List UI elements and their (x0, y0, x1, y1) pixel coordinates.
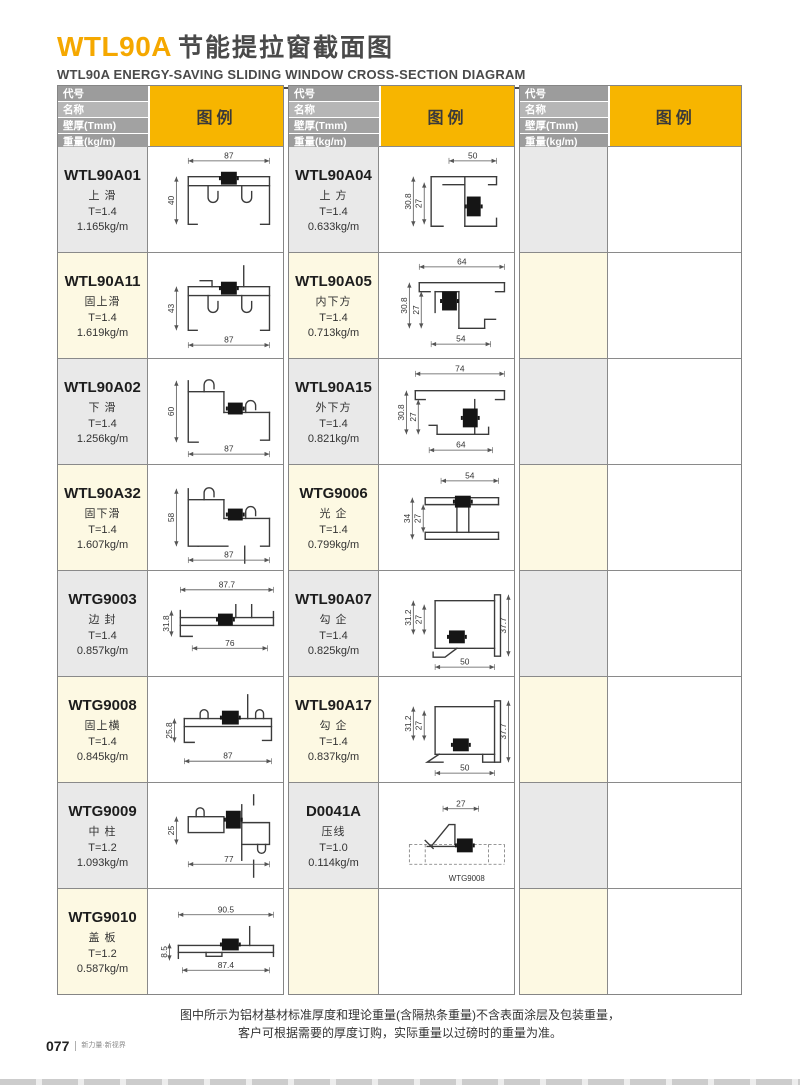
profile-code: WTL90A17 (295, 697, 372, 714)
cross-section-diagram: 4387 (148, 253, 283, 358)
profile-info-cell: WTG9009中 柱T=1.21.093kg/m (58, 783, 148, 888)
profile-code: WTG9008 (68, 697, 136, 714)
profile-row: WTG9006光 企T=1.40.799kg/m543427 (289, 464, 514, 570)
profile-info-cell (289, 889, 379, 994)
profile-table-1: 代号名称壁厚(Tmm)重量(kg/m)图例WTL90A01上 滑T=1.41.1… (57, 85, 284, 995)
profile-name: 中 柱 (88, 823, 116, 839)
table-header: 代号名称壁厚(Tmm)重量(kg/m)图例 (289, 86, 514, 146)
title-series-code: WTL90A (57, 31, 172, 62)
svg-text:WTG9008: WTG9008 (449, 874, 486, 883)
svg-text:27: 27 (413, 513, 423, 523)
profile-code: WTL90A02 (64, 379, 141, 396)
cross-section-diagram: 25.887 (148, 677, 283, 782)
profile-row: WTG9010盖 板T=1.20.587kg/m90.58.587.4 (58, 888, 283, 994)
profile-thickness: T=1.4 (88, 206, 116, 218)
header-label: 名称 (289, 102, 379, 117)
profile-name: 勾 企 (319, 717, 347, 733)
profile-row: WTL90A17勾 企T=1.40.837kg/m31.22737.750 (289, 676, 514, 782)
profile-info-cell (520, 253, 608, 358)
profile-row (520, 358, 741, 464)
profile-thickness: T=1.4 (88, 736, 116, 748)
legend-header: 图例 (381, 86, 514, 146)
cross-section-diagram: 90.58.587.4 (148, 889, 283, 994)
profile-row: WTL90A32固下滑T=1.41.607kg/m5887 (58, 464, 283, 570)
profile-info-cell: WTG9008固上横T=1.40.845kg/m (58, 677, 148, 782)
profile-thickness: T=1.4 (319, 206, 347, 218)
svg-text:54: 54 (465, 470, 475, 480)
profile-name: 勾 企 (319, 611, 347, 627)
profile-info-cell: WTL90A17勾 企T=1.40.837kg/m (289, 677, 379, 782)
profile-info-cell (520, 677, 608, 782)
brand-slogan: 新力量·新视界 (75, 1041, 125, 1051)
svg-text:87.7: 87.7 (219, 579, 236, 589)
profile-code: WTG9003 (68, 591, 136, 608)
profile-code: WTL90A32 (64, 485, 141, 502)
profile-code: WTG9010 (68, 909, 136, 926)
profile-weight: 0.857kg/m (77, 645, 128, 657)
svg-text:30.8: 30.8 (396, 404, 406, 421)
svg-text:58: 58 (166, 513, 176, 523)
profile-thickness: T=1.4 (319, 418, 347, 430)
page-subtitle: WTL90A ENERGY-SAVING SLIDING WINDOW CROS… (57, 67, 740, 82)
profile-weight: 1.619kg/m (77, 327, 128, 339)
page-footer: 077 新力量·新视界 (46, 1038, 126, 1054)
profile-thickness: T=1.4 (88, 312, 116, 324)
profile-name: 上 滑 (88, 187, 116, 203)
cross-section-diagram: 31.22737.750 (379, 571, 514, 676)
svg-text:87: 87 (224, 550, 234, 560)
profile-name: 上 方 (319, 187, 347, 203)
svg-text:64: 64 (457, 256, 467, 266)
cross-section-diagram: 5887 (148, 465, 283, 570)
profile-weight: 1.165kg/m (77, 221, 128, 233)
profile-weight: 0.713kg/m (308, 327, 359, 339)
cross-section-diagram: 27WTG9008 (379, 783, 514, 888)
cross-section-diagram (608, 253, 741, 358)
profile-code: WTL90A11 (65, 273, 141, 290)
table-header: 代号名称壁厚(Tmm)重量(kg/m)图例 (58, 86, 283, 146)
profile-thickness: T=1.4 (88, 630, 116, 642)
profile-code: WTL90A07 (295, 591, 372, 608)
profile-name: 下 滑 (88, 399, 116, 415)
page-number: 077 (46, 1038, 69, 1054)
cross-section-diagram (608, 359, 741, 464)
profile-code: WTL90A04 (295, 167, 372, 184)
legend-header: 图例 (150, 86, 283, 146)
svg-text:27: 27 (414, 198, 424, 208)
profile-row: WTL90A05内下方T=1.40.713kg/m6430.82754 (289, 252, 514, 358)
profile-weight: 0.845kg/m (77, 751, 128, 763)
cross-section-diagram (608, 677, 741, 782)
profile-weight: 0.114kg/m (308, 857, 359, 869)
profile-weight: 0.821kg/m (308, 433, 359, 445)
svg-text:27: 27 (411, 305, 421, 315)
title-chinese: 节能提拉窗截面图 (178, 34, 394, 62)
profile-thickness: T=1.4 (88, 418, 116, 430)
profile-weight: 1.093kg/m (77, 857, 128, 869)
profile-weight: 0.837kg/m (308, 751, 359, 763)
svg-text:40: 40 (166, 195, 176, 205)
profile-row (520, 464, 741, 570)
header-label: 代号 (58, 86, 148, 101)
svg-text:8.5: 8.5 (159, 946, 169, 958)
profile-row (520, 570, 741, 676)
svg-text:25.8: 25.8 (164, 722, 174, 739)
profile-info-cell: WTL90A11固上滑T=1.41.619kg/m (58, 253, 148, 358)
header-label: 壁厚(Tmm) (58, 118, 148, 133)
profile-weight: 1.607kg/m (77, 539, 128, 551)
svg-text:27: 27 (414, 721, 424, 731)
svg-text:27: 27 (414, 615, 424, 625)
profile-name: 内下方 (316, 293, 352, 309)
profile-weight: 0.799kg/m (308, 539, 359, 551)
profile-row: WTG9009中 柱T=1.21.093kg/m2577 (58, 782, 283, 888)
profile-name: 边 封 (88, 611, 116, 627)
profile-row: WTL90A04上 方T=1.40.633kg/m5030.827 (289, 146, 514, 252)
profile-table-3: 代号名称壁厚(Tmm)重量(kg/m)图例 (519, 85, 742, 995)
profile-info-cell (520, 571, 608, 676)
profile-name: 光 企 (319, 505, 347, 521)
svg-text:27: 27 (408, 412, 418, 422)
header-label: 名称 (58, 102, 148, 117)
profile-thickness: T=1.2 (88, 842, 116, 854)
profile-name: 固上横 (85, 717, 121, 733)
svg-text:87: 87 (224, 335, 234, 345)
svg-text:31.2: 31.2 (403, 609, 413, 626)
profile-row: WTL90A02下 滑T=1.41.256kg/m6087 (58, 358, 283, 464)
profile-info-cell (520, 465, 608, 570)
profile-code: WTL90A15 (295, 379, 372, 396)
profile-row: WTL90A01上 滑T=1.41.165kg/m8740 (58, 146, 283, 252)
profile-thickness: T=1.4 (88, 524, 116, 536)
profile-row (520, 252, 741, 358)
profile-info-cell (520, 359, 608, 464)
profile-code: WTG9009 (68, 803, 136, 820)
profile-weight: 0.587kg/m (77, 963, 128, 975)
profile-thickness: T=1.4 (319, 312, 347, 324)
cross-section-diagram (608, 783, 741, 888)
svg-text:60: 60 (166, 407, 176, 417)
svg-text:43: 43 (166, 303, 176, 313)
svg-text:37.7: 37.7 (498, 723, 508, 740)
profile-code: WTL90A05 (295, 273, 372, 290)
profile-row: WTL90A15外下方T=1.40.821kg/m7430.82764 (289, 358, 514, 464)
svg-text:87: 87 (224, 444, 234, 454)
svg-text:87: 87 (224, 150, 234, 160)
profile-code: WTL90A01 (64, 167, 141, 184)
profile-code: WTG9006 (299, 485, 367, 502)
header-label-column: 代号名称壁厚(Tmm)重量(kg/m) (58, 86, 148, 146)
profile-info-cell: WTL90A04上 方T=1.40.633kg/m (289, 147, 379, 252)
profile-info-cell (520, 783, 608, 888)
cross-section-diagram: 5030.827 (379, 147, 514, 252)
profile-table-2: 代号名称壁厚(Tmm)重量(kg/m)图例WTL90A04上 方T=1.40.6… (288, 85, 515, 995)
footnote-line2: 客户可根据需要的厚度订购，实际重量以过磅时的重量为准。 (80, 1024, 720, 1042)
svg-text:31.8: 31.8 (161, 615, 171, 632)
cross-section-diagram (608, 571, 741, 676)
svg-text:30.8: 30.8 (403, 193, 413, 210)
svg-text:27: 27 (456, 798, 466, 808)
profile-info-cell: D0041A压线T=1.00.114kg/m (289, 783, 379, 888)
profile-row: WTG9003边 封T=1.40.857kg/m87.731.876 (58, 570, 283, 676)
svg-text:34: 34 (402, 513, 412, 523)
profile-info-cell: WTL90A02下 滑T=1.41.256kg/m (58, 359, 148, 464)
header-label-column: 代号名称壁厚(Tmm)重量(kg/m) (289, 86, 379, 146)
profile-row (520, 782, 741, 888)
profile-info-cell: WTL90A01上 滑T=1.41.165kg/m (58, 147, 148, 252)
svg-text:31.2: 31.2 (403, 715, 413, 732)
page-title: WTL90A节能提拉窗截面图 (57, 28, 740, 64)
svg-text:77: 77 (224, 854, 234, 864)
profile-info-cell: WTL90A05内下方T=1.40.713kg/m (289, 253, 379, 358)
cross-section-diagram (379, 889, 514, 994)
header-label: 壁厚(Tmm) (289, 118, 379, 133)
svg-text:50: 50 (460, 657, 470, 667)
footnote: 图中所示为铝材基材标准厚度和理论重量(含隔热条重量)不含表面涂层及包装重量， 客… (80, 1006, 720, 1042)
svg-text:64: 64 (456, 440, 466, 450)
svg-text:54: 54 (456, 334, 466, 344)
svg-text:30.8: 30.8 (399, 297, 409, 314)
footnote-line1: 图中所示为铝材基材标准厚度和理论重量(含隔热条重量)不含表面涂层及包装重量， (80, 1006, 720, 1024)
profile-info-cell: WTG9003边 封T=1.40.857kg/m (58, 571, 148, 676)
cross-section-diagram: 8740 (148, 147, 283, 252)
cross-section-diagram: 6087 (148, 359, 283, 464)
profile-row: WTL90A07勾 企T=1.40.825kg/m31.22737.750 (289, 570, 514, 676)
profile-info-cell: WTG9010盖 板T=1.20.587kg/m (58, 889, 148, 994)
profile-tables: 代号名称壁厚(Tmm)重量(kg/m)图例WTL90A01上 滑T=1.41.1… (57, 85, 742, 995)
profile-weight: 1.256kg/m (77, 433, 128, 445)
profile-name: 压线 (322, 823, 346, 839)
cross-section-diagram (608, 889, 741, 994)
header-label: 名称 (520, 102, 608, 117)
cross-section-diagram: 543427 (379, 465, 514, 570)
svg-text:25: 25 (166, 826, 176, 836)
svg-text:50: 50 (460, 763, 470, 773)
profile-row (520, 676, 741, 782)
header-label: 代号 (520, 86, 608, 101)
svg-text:90.5: 90.5 (218, 904, 235, 914)
svg-text:74: 74 (455, 363, 465, 373)
profile-thickness: T=1.2 (88, 948, 116, 960)
profile-name: 盖 板 (88, 929, 116, 945)
profile-row: WTL90A11固上滑T=1.41.619kg/m4387 (58, 252, 283, 358)
profile-thickness: T=1.4 (319, 736, 347, 748)
svg-text:76: 76 (225, 638, 235, 648)
profile-row: WTG9008固上横T=1.40.845kg/m25.887 (58, 676, 283, 782)
profile-info-cell: WTL90A15外下方T=1.40.821kg/m (289, 359, 379, 464)
profile-info-cell (520, 147, 608, 252)
svg-text:37.7: 37.7 (498, 617, 508, 634)
legend-header: 图例 (610, 86, 741, 146)
cross-section-diagram (608, 465, 741, 570)
table-header: 代号名称壁厚(Tmm)重量(kg/m)图例 (520, 86, 741, 146)
profile-name: 外下方 (316, 399, 352, 415)
profile-thickness: T=1.0 (319, 842, 347, 854)
svg-text:87.4: 87.4 (218, 960, 235, 970)
svg-text:87: 87 (223, 751, 233, 761)
svg-text:50: 50 (468, 150, 478, 160)
profile-thickness: T=1.4 (319, 524, 347, 536)
profile-info-cell: WTL90A32固下滑T=1.41.607kg/m (58, 465, 148, 570)
cross-section-diagram (608, 147, 741, 252)
profile-weight: 0.633kg/m (308, 221, 359, 233)
profile-name: 固上滑 (85, 293, 121, 309)
page-edge-strip (0, 1079, 800, 1085)
cross-section-diagram: 7430.82764 (379, 359, 514, 464)
profile-row (520, 888, 741, 994)
cross-section-diagram: 87.731.876 (148, 571, 283, 676)
profile-row (520, 146, 741, 252)
profile-info-cell (520, 889, 608, 994)
profile-code: D0041A (306, 803, 361, 820)
cross-section-diagram: 31.22737.750 (379, 677, 514, 782)
profile-weight: 0.825kg/m (308, 645, 359, 657)
profile-thickness: T=1.4 (319, 630, 347, 642)
cross-section-diagram: 6430.82754 (379, 253, 514, 358)
profile-row: D0041A压线T=1.00.114kg/m27WTG9008 (289, 782, 514, 888)
page-header: WTL90A节能提拉窗截面图 WTL90A ENERGY-SAVING SLID… (57, 28, 740, 89)
cross-section-diagram: 2577 (148, 783, 283, 888)
header-label: 壁厚(Tmm) (520, 118, 608, 133)
profile-info-cell: WTG9006光 企T=1.40.799kg/m (289, 465, 379, 570)
profile-info-cell: WTL90A07勾 企T=1.40.825kg/m (289, 571, 379, 676)
profile-name: 固下滑 (85, 505, 121, 521)
header-label: 代号 (289, 86, 379, 101)
profile-row (289, 888, 514, 994)
header-label-column: 代号名称壁厚(Tmm)重量(kg/m) (520, 86, 608, 146)
